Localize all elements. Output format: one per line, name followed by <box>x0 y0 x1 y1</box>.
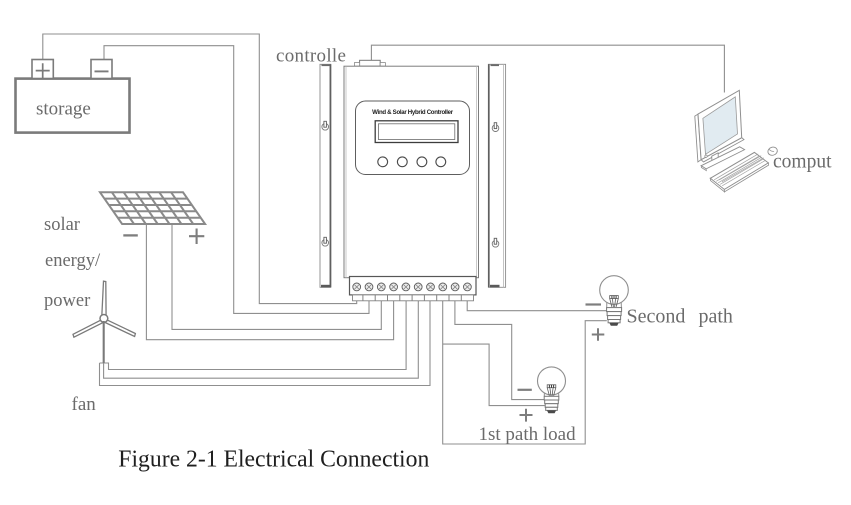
svg-text:solar: solar <box>44 215 80 235</box>
svg-text:comput: comput <box>773 152 832 173</box>
svg-text:energy/: energy/ <box>45 251 101 271</box>
svg-text:1st path load: 1st path load <box>479 424 577 445</box>
svg-text:Secondpath: Secondpath <box>627 306 733 328</box>
svg-text:storage: storage <box>36 99 91 120</box>
svg-text:Wind & Solar Hybrid Controller: Wind & Solar Hybrid Controller <box>372 109 454 116</box>
svg-text:power: power <box>44 291 90 311</box>
svg-text:Figure 2-1 Electrical Connecti: Figure 2-1 Electrical Connection <box>118 446 429 473</box>
svg-text:controlle: controlle <box>276 46 346 67</box>
svg-text:fan: fan <box>72 394 97 415</box>
